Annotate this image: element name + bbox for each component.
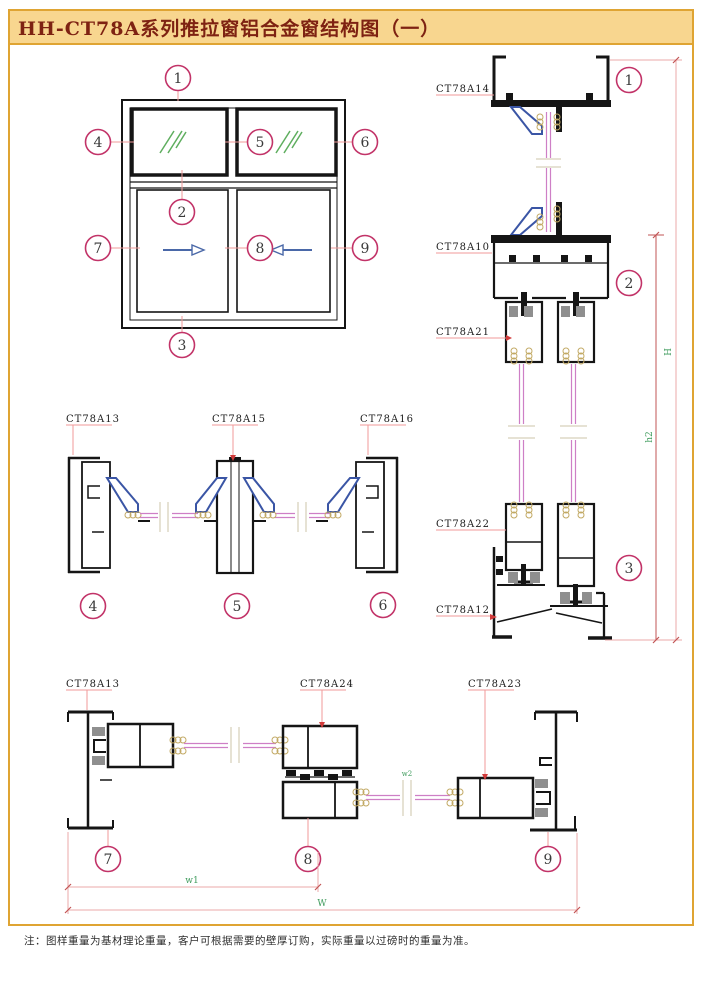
- label-sash-top: CT78A21: [436, 327, 490, 338]
- width-dimensions: w1 W: [65, 832, 580, 914]
- profile-mullion: [195, 457, 276, 573]
- svg-text:7: 7: [94, 241, 103, 257]
- callout-8: 8: [248, 236, 273, 261]
- drawing-sheet: HH-CT78A系列推拉窗铝合金窗结构图（一）: [0, 0, 706, 1000]
- label-sash-bottom: CT78A22: [436, 519, 490, 530]
- svg-text:5: 5: [233, 599, 242, 615]
- profile-left-jamb: [68, 457, 150, 573]
- label-transom: CT78A10: [436, 242, 490, 253]
- footnote: 注：图样重量为基材理论重量，客户可根据需要的壁厚订购，实际重量以过磅时的重量为准…: [24, 933, 684, 948]
- svg-text:3: 3: [178, 338, 187, 354]
- svg-text:2: 2: [625, 276, 634, 292]
- profile-interlock: [272, 726, 369, 818]
- svg-text:9: 9: [361, 241, 370, 257]
- callout-sec-3: 3: [617, 556, 642, 581]
- callout-sec-1: 1: [617, 68, 642, 93]
- dim-lower-height: h2: [645, 431, 655, 443]
- profile-right-sash: [447, 778, 550, 818]
- svg-text:4: 4: [89, 599, 98, 615]
- label-top-right-jamb: CT78A16: [360, 414, 414, 425]
- callout-5: 5: [248, 130, 273, 155]
- callout-9: 9: [353, 236, 378, 261]
- callout-sec-5: 5: [225, 594, 250, 619]
- callout-sec-7: 7: [96, 847, 121, 872]
- svg-text:6: 6: [361, 135, 370, 151]
- label-interlock: CT78A24: [300, 679, 354, 690]
- callout-sec-4: 4: [81, 594, 106, 619]
- svg-text:8: 8: [304, 852, 313, 868]
- svg-text:4: 4: [94, 135, 103, 151]
- dim-sash-width: w1: [185, 876, 198, 886]
- svg-text:8: 8: [256, 241, 265, 257]
- bottom-horizontal-section-view: w2 CT78: [65, 679, 580, 914]
- label-sill: CT78A12: [436, 605, 490, 616]
- profile-bottom-left-jamb: [68, 712, 186, 828]
- svg-text:1: 1: [625, 73, 634, 89]
- slide-arrow-right-icon: [163, 245, 204, 255]
- dim-glass-width: w2: [402, 770, 412, 778]
- callout-sec-2: 2: [617, 271, 642, 296]
- top-horizontal-section-view: CT78A13 CT78A15 CT78A16 4 5 6: [66, 414, 414, 619]
- glass-pane: [184, 744, 276, 748]
- vertical-section-view: CT78A14 CT78A10 CT78A21 CT78A22 CT78A12 …: [436, 57, 682, 643]
- callout-sec-6: 6: [371, 593, 396, 618]
- callout-2: 2: [170, 200, 195, 225]
- profile-right-jamb: [316, 457, 398, 573]
- svg-text:1: 1: [174, 71, 183, 87]
- profile-sash-top-rails: [506, 302, 594, 364]
- label-top-left-jamb: CT78A13: [66, 414, 120, 425]
- callout-6: 6: [353, 130, 378, 155]
- svg-text:6: 6: [379, 598, 388, 614]
- slide-arrow-left-icon: [271, 245, 312, 255]
- label-head: CT78A14: [436, 84, 490, 95]
- callout-4: 4: [86, 130, 111, 155]
- callout-7: 7: [86, 236, 111, 261]
- label-mullion: CT78A15: [212, 414, 266, 425]
- callout-3: 3: [170, 333, 195, 358]
- height-dimensions: H h2: [605, 57, 682, 643]
- label-right-sash: CT78A23: [468, 679, 522, 690]
- label-bottom-left-jamb: CT78A13: [66, 679, 120, 690]
- callout-1: 1: [166, 66, 191, 91]
- svg-text:9: 9: [544, 852, 553, 868]
- dim-overall-width: W: [317, 899, 327, 909]
- callout-sec-9: 9: [536, 847, 561, 872]
- glass-pane: [520, 364, 576, 502]
- glass-pane: [547, 112, 551, 232]
- svg-text:3: 3: [625, 561, 634, 577]
- svg-text:5: 5: [256, 135, 265, 151]
- glass-pane: [366, 796, 450, 800]
- profile-sash-bottom-rails: [506, 502, 594, 606]
- svg-text:7: 7: [104, 852, 113, 868]
- elevation-view: 1 4 5 6 2 7 8 9 3: [86, 66, 378, 358]
- svg-text:2: 2: [178, 205, 187, 221]
- technical-drawing: 1 4 5 6 2 7 8 9 3: [0, 0, 706, 1000]
- dim-overall-height: H: [664, 348, 674, 356]
- callout-sec-8: 8: [296, 847, 321, 872]
